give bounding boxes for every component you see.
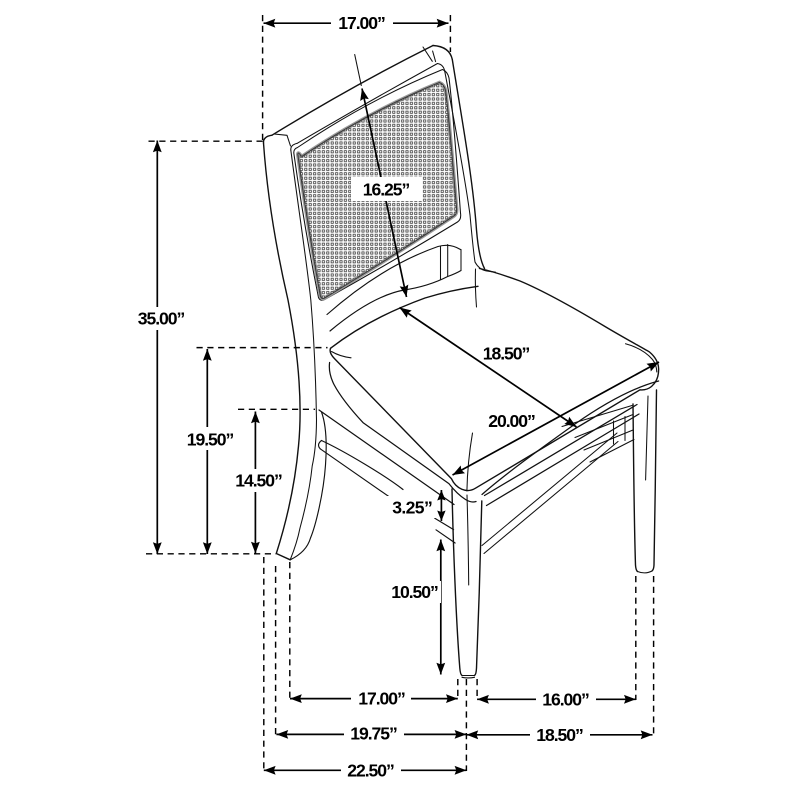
svg-text:18.50”: 18.50” bbox=[536, 725, 584, 745]
svg-text:22.50”: 22.50” bbox=[347, 760, 395, 780]
svg-text:10.50”: 10.50” bbox=[391, 582, 439, 602]
svg-text:3.25”: 3.25” bbox=[392, 498, 433, 518]
svg-text:14.50”: 14.50” bbox=[235, 471, 283, 491]
svg-text:19.50”: 19.50” bbox=[187, 430, 235, 450]
svg-text:16.00”: 16.00” bbox=[542, 689, 590, 709]
svg-text:17.00”: 17.00” bbox=[338, 13, 386, 33]
svg-text:17.00”: 17.00” bbox=[358, 689, 406, 709]
svg-text:16.25”: 16.25” bbox=[363, 180, 411, 200]
svg-text:20.00”: 20.00” bbox=[488, 411, 536, 431]
svg-text:19.75”: 19.75” bbox=[350, 723, 398, 743]
svg-text:35.00”: 35.00” bbox=[138, 309, 186, 329]
svg-text:18.50”: 18.50” bbox=[483, 344, 531, 364]
